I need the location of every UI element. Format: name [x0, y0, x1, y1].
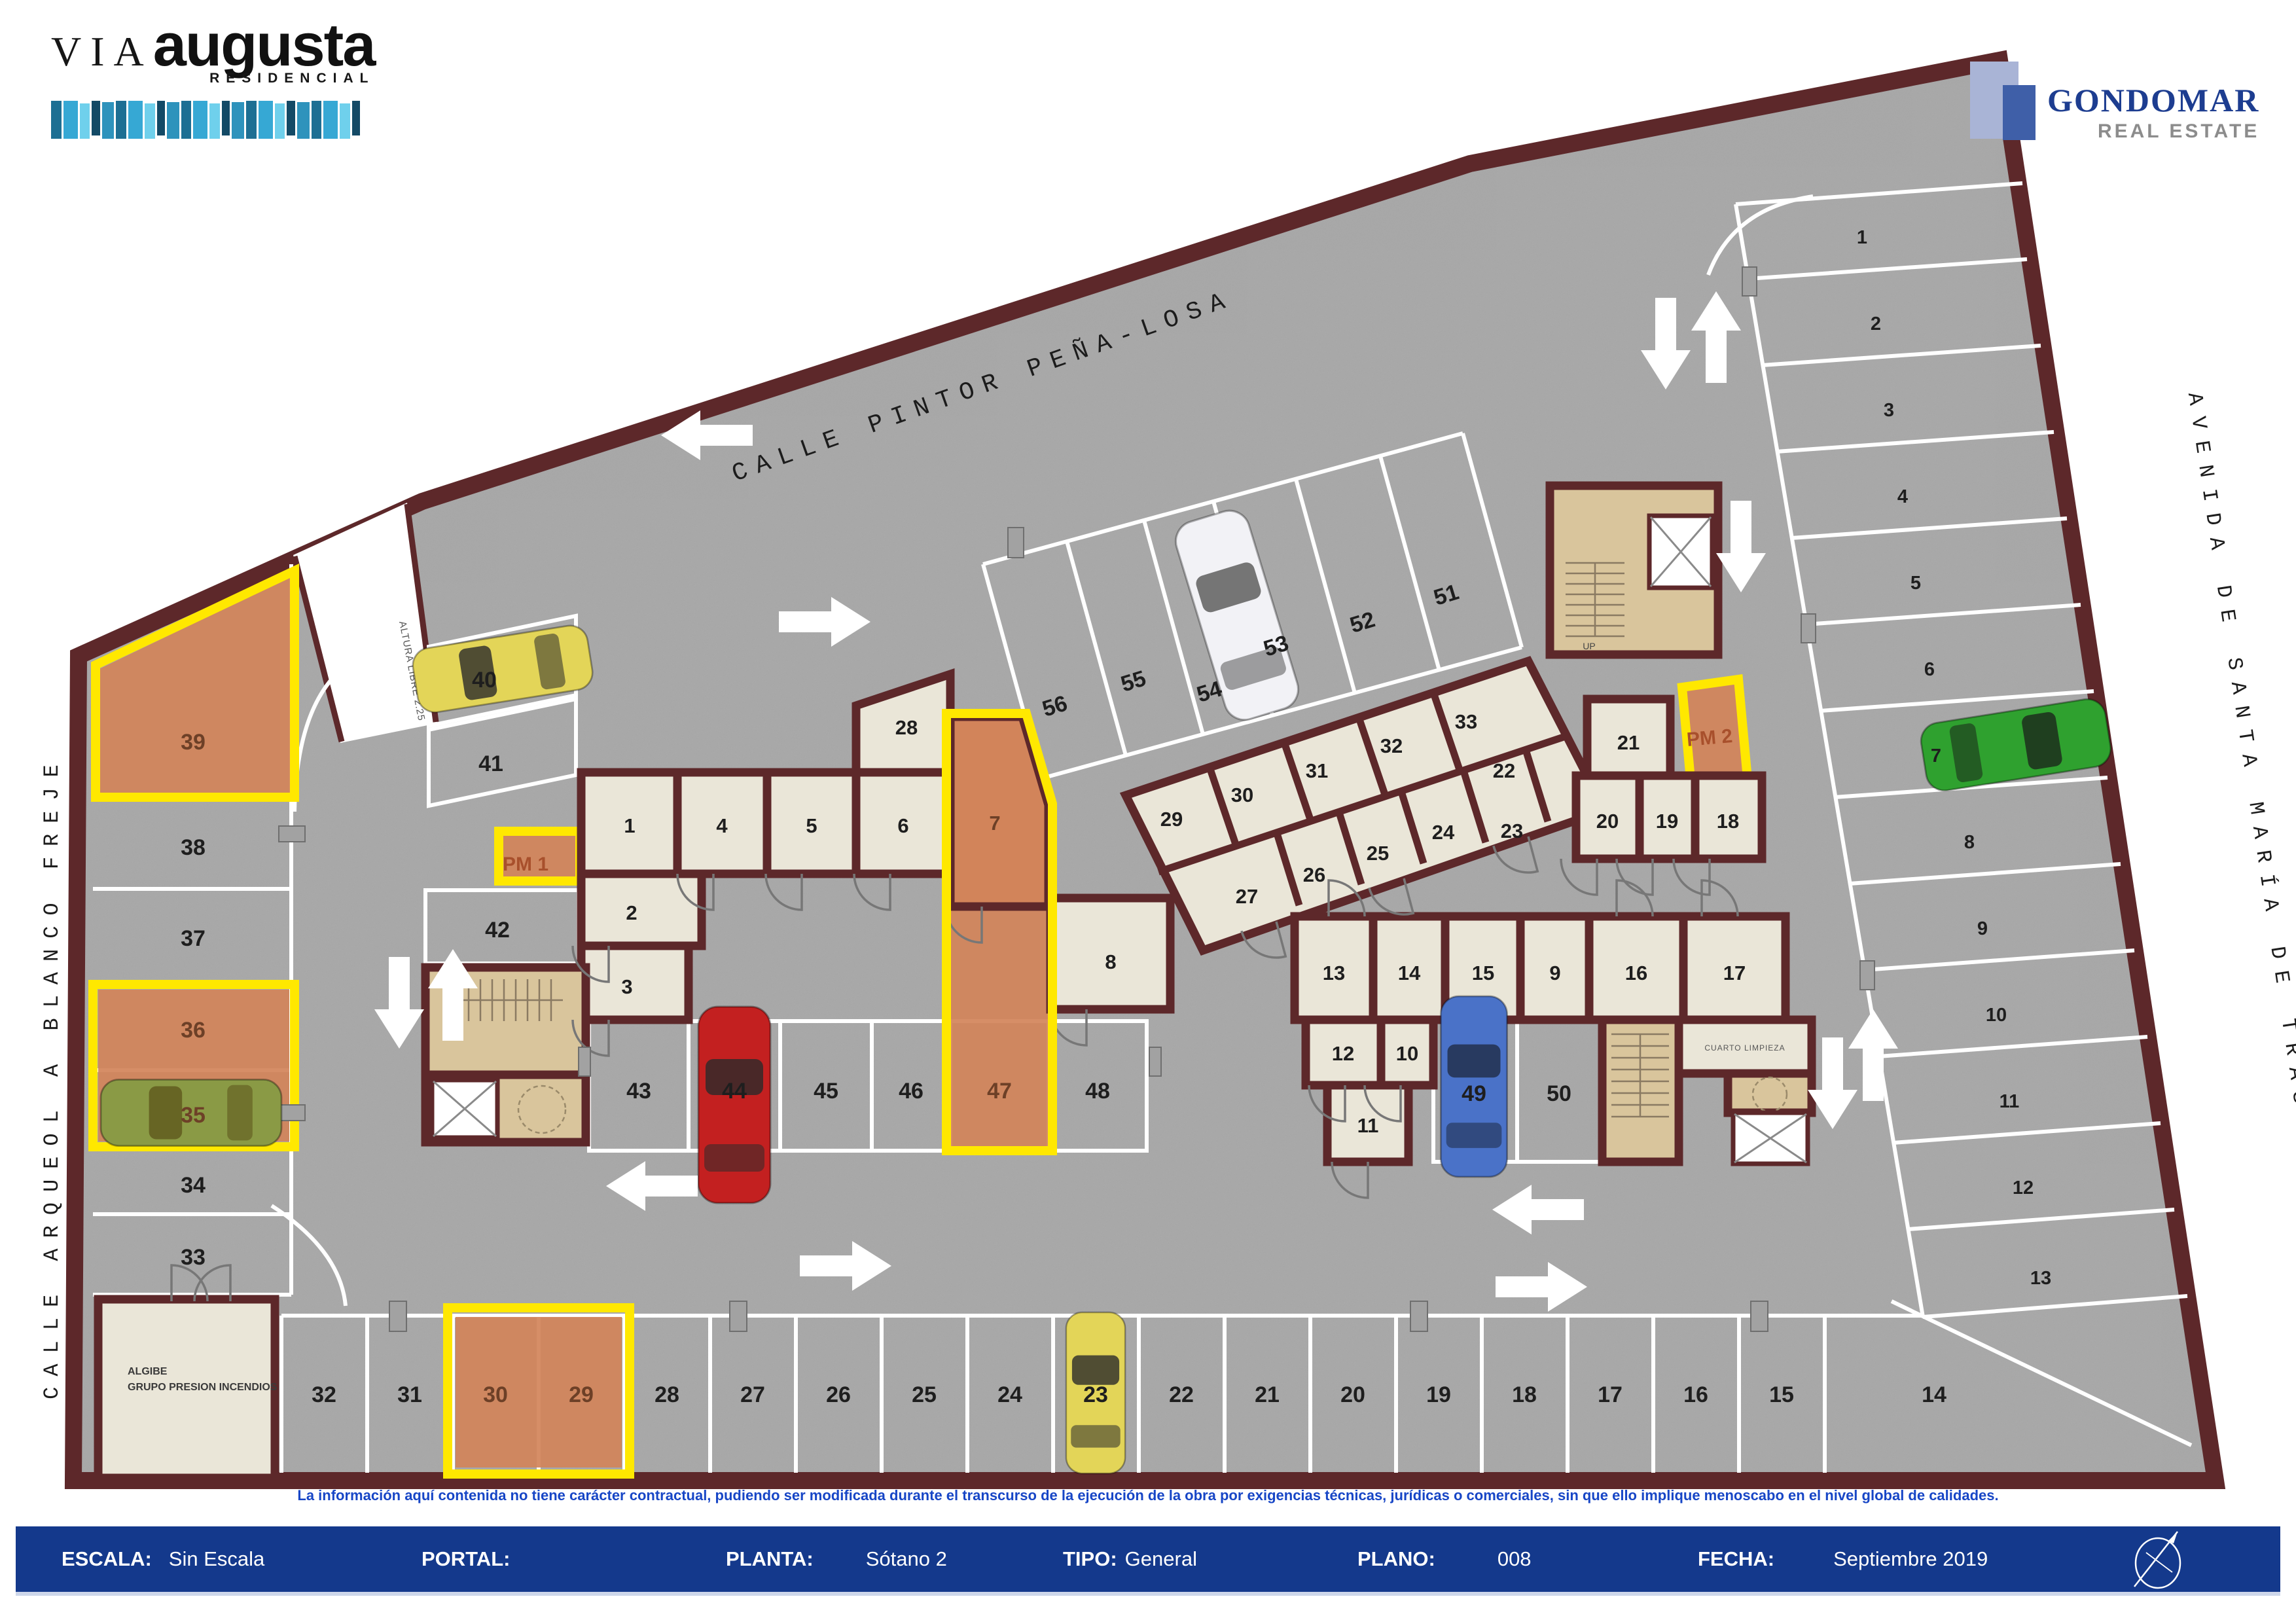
t20-label: 20: [1596, 810, 1619, 833]
gondomar-logo: GONDOMAR REAL ESTATE: [1965, 58, 2259, 143]
spot-b26-label: 26: [826, 1382, 851, 1407]
spot-36-label: 36: [181, 1018, 206, 1043]
brand-augusta: augusta: [153, 18, 375, 73]
spot-50-label: 50: [1547, 1081, 1571, 1106]
t21-label: 21: [1617, 731, 1640, 754]
realtor-tagline: REAL ESTATE: [2047, 120, 2259, 143]
spot-43-label: 43: [626, 1079, 651, 1104]
t30-label: 30: [1231, 783, 1253, 806]
spot-37-label: 37: [181, 926, 206, 951]
spot-r9-label: 9: [1977, 918, 1988, 939]
t12-label: 12: [1332, 1042, 1354, 1065]
spot-33-label: 33: [181, 1245, 206, 1270]
fecha-label: FECHA:: [1698, 1547, 1774, 1571]
field-escala: ESCALA: Sin Escala: [62, 1526, 264, 1592]
spot-38-label: 38: [181, 835, 206, 860]
spot-49-label: 49: [1462, 1081, 1486, 1106]
t23-label: 23: [1501, 819, 1523, 842]
escala-label: ESCALA:: [62, 1547, 152, 1571]
pm1-label: PM 1: [503, 854, 548, 875]
spot-b22-label: 22: [1169, 1382, 1194, 1407]
portal-label: PORTAL:: [422, 1547, 510, 1571]
spot-r13-label: 13: [2030, 1268, 2051, 1289]
t7-label: 7: [989, 812, 1000, 835]
spot-46-label: 46: [899, 1079, 924, 1104]
spot-b21-label: 21: [1255, 1382, 1280, 1407]
spot-47-label: 47: [987, 1079, 1012, 1104]
spot-r11-label: 11: [2000, 1091, 2020, 1112]
algibe-label-2: GRUPO PRESION INCENDIOS: [128, 1382, 278, 1393]
t6-label: 6: [897, 814, 908, 837]
spot-35-label: 35: [181, 1103, 206, 1128]
spot-34-label: 34: [181, 1173, 206, 1198]
t26-label: 26: [1303, 863, 1325, 886]
t27-label: 27: [1236, 885, 1258, 908]
t1-label: 1: [624, 814, 635, 837]
t33-label: 33: [1455, 710, 1477, 733]
t17-label: 17: [1723, 962, 1746, 984]
street-left-label: CALLE ARQUEOL A BLANCO FREJE: [40, 754, 64, 1399]
spot-b17-label: 17: [1598, 1382, 1623, 1407]
t29-label: 29: [1160, 808, 1183, 831]
t19-label: 19: [1656, 810, 1678, 833]
up-label: UP: [1583, 641, 1595, 651]
spot-b24-label: 24: [997, 1382, 1022, 1407]
spot-45-label: 45: [814, 1079, 838, 1104]
t31-label: 31: [1306, 759, 1328, 782]
planta-value: Sótano 2: [866, 1547, 947, 1571]
via-augusta-logo: VIAaugusta RESIDENCIAL: [51, 18, 374, 139]
field-tipo: TIPO: General: [1063, 1526, 1197, 1592]
t9-label: 9: [1549, 962, 1560, 984]
algibe-room: [98, 1265, 275, 1478]
t4-label: 4: [716, 814, 728, 837]
spot-40-label: 40: [472, 668, 497, 693]
t3-label: 3: [621, 975, 632, 998]
t32-label: 32: [1380, 734, 1403, 757]
spot-b30-label: 30: [483, 1382, 508, 1407]
spot-b16-label: 16: [1683, 1382, 1708, 1407]
spot-r4-label: 4: [1897, 486, 1908, 507]
spot-b19-label: 19: [1426, 1382, 1451, 1407]
t25-label: 25: [1367, 842, 1389, 865]
brand-via: VIA: [51, 27, 153, 76]
t5-label: 5: [806, 814, 817, 837]
t8-label: 8: [1105, 950, 1116, 973]
t22-label: 22: [1493, 759, 1515, 782]
spot-r12-label: 12: [2013, 1178, 2034, 1198]
spot-48-label: 48: [1085, 1079, 1110, 1104]
spot-39-label: 39: [181, 730, 206, 755]
field-fecha: FECHA: Septiembre 2019: [1698, 1526, 1988, 1592]
tipo-label: TIPO:: [1063, 1547, 1117, 1571]
spot-b18-label: 18: [1512, 1382, 1537, 1407]
plano-label: PLANO:: [1357, 1547, 1435, 1571]
t28-label: 28: [895, 716, 918, 739]
planta-label: PLANTA:: [726, 1547, 814, 1571]
spot-b15-label: 15: [1769, 1382, 1794, 1407]
field-plano: PLANO: 008: [1357, 1526, 1532, 1592]
spot-b27-label: 27: [740, 1382, 765, 1407]
floor-plan: ALTURA LIBRE 2.25: [0, 0, 2296, 1620]
spot-r6-label: 6: [1924, 659, 1935, 680]
mosaic-strip: [51, 101, 360, 139]
t15-label: 15: [1472, 962, 1494, 984]
spot-b31-label: 31: [397, 1382, 422, 1407]
spot-b23-label: 23: [1083, 1382, 1108, 1407]
spot-41-label: 41: [478, 751, 503, 776]
spot-r10-label: 10: [1986, 1005, 2007, 1026]
spot-b14-label: 14: [1922, 1382, 1946, 1407]
algibe-label-1: ALGIBE: [128, 1366, 168, 1377]
spot-b20-label: 20: [1340, 1382, 1365, 1407]
tipo-value: General: [1125, 1547, 1197, 1571]
t11-label: 11: [1357, 1114, 1379, 1137]
spot-b29-label: 29: [569, 1382, 594, 1407]
cuarto-limpieza-label: CUARTO LIMPIEZA: [1704, 1043, 1785, 1053]
fecha-value: Septiembre 2019: [1833, 1547, 1988, 1571]
spot-r1-label: 1: [1857, 227, 1867, 248]
car-red-44: [698, 1007, 770, 1203]
realtor-name: GONDOMAR: [2047, 81, 2259, 119]
compass-icon: [2120, 1526, 2192, 1592]
spot-42-label: 42: [485, 918, 510, 943]
escala-value: Sin Escala: [169, 1547, 264, 1571]
spot-b25-label: 25: [912, 1382, 937, 1407]
plan-page: ALTURA LIBRE 2.25: [0, 0, 2296, 1620]
spot-44-label: 44: [722, 1079, 747, 1104]
field-portal: PORTAL:: [422, 1526, 527, 1592]
t10-label: 10: [1396, 1042, 1418, 1065]
spot-b32-label: 32: [312, 1382, 336, 1407]
spot-b28-label: 28: [655, 1382, 679, 1407]
spot-r5-label: 5: [1910, 573, 1921, 594]
pm2-label: PM 2: [1686, 725, 1734, 751]
street-right-label: AVENIDA DE SANTA MARÍA DE TRASIERRA: [2182, 391, 2296, 1237]
spot-r7-label: 7: [1931, 746, 1941, 766]
t24-label: 24: [1432, 821, 1455, 844]
field-planta: PLANTA: Sótano 2: [726, 1526, 947, 1592]
t13-label: 13: [1323, 962, 1345, 984]
t16-label: 16: [1625, 962, 1647, 984]
t14-label: 14: [1398, 962, 1421, 984]
spot-r3-label: 3: [1884, 400, 1894, 421]
stair-core-topright: UP: [1550, 486, 1718, 655]
gondomar-logo-mark: [1965, 58, 2037, 143]
plano-value: 008: [1498, 1547, 1532, 1571]
disclaimer-text: La información aquí contenida no tiene c…: [0, 1487, 2296, 1504]
t18-label: 18: [1717, 810, 1739, 833]
spot-r8-label: 8: [1964, 832, 1975, 853]
spot-r2-label: 2: [1871, 314, 1881, 334]
t2-label: 2: [626, 901, 637, 924]
title-block-bar: ESCALA: Sin Escala PORTAL: PLANTA: Sótan…: [16, 1526, 2280, 1596]
